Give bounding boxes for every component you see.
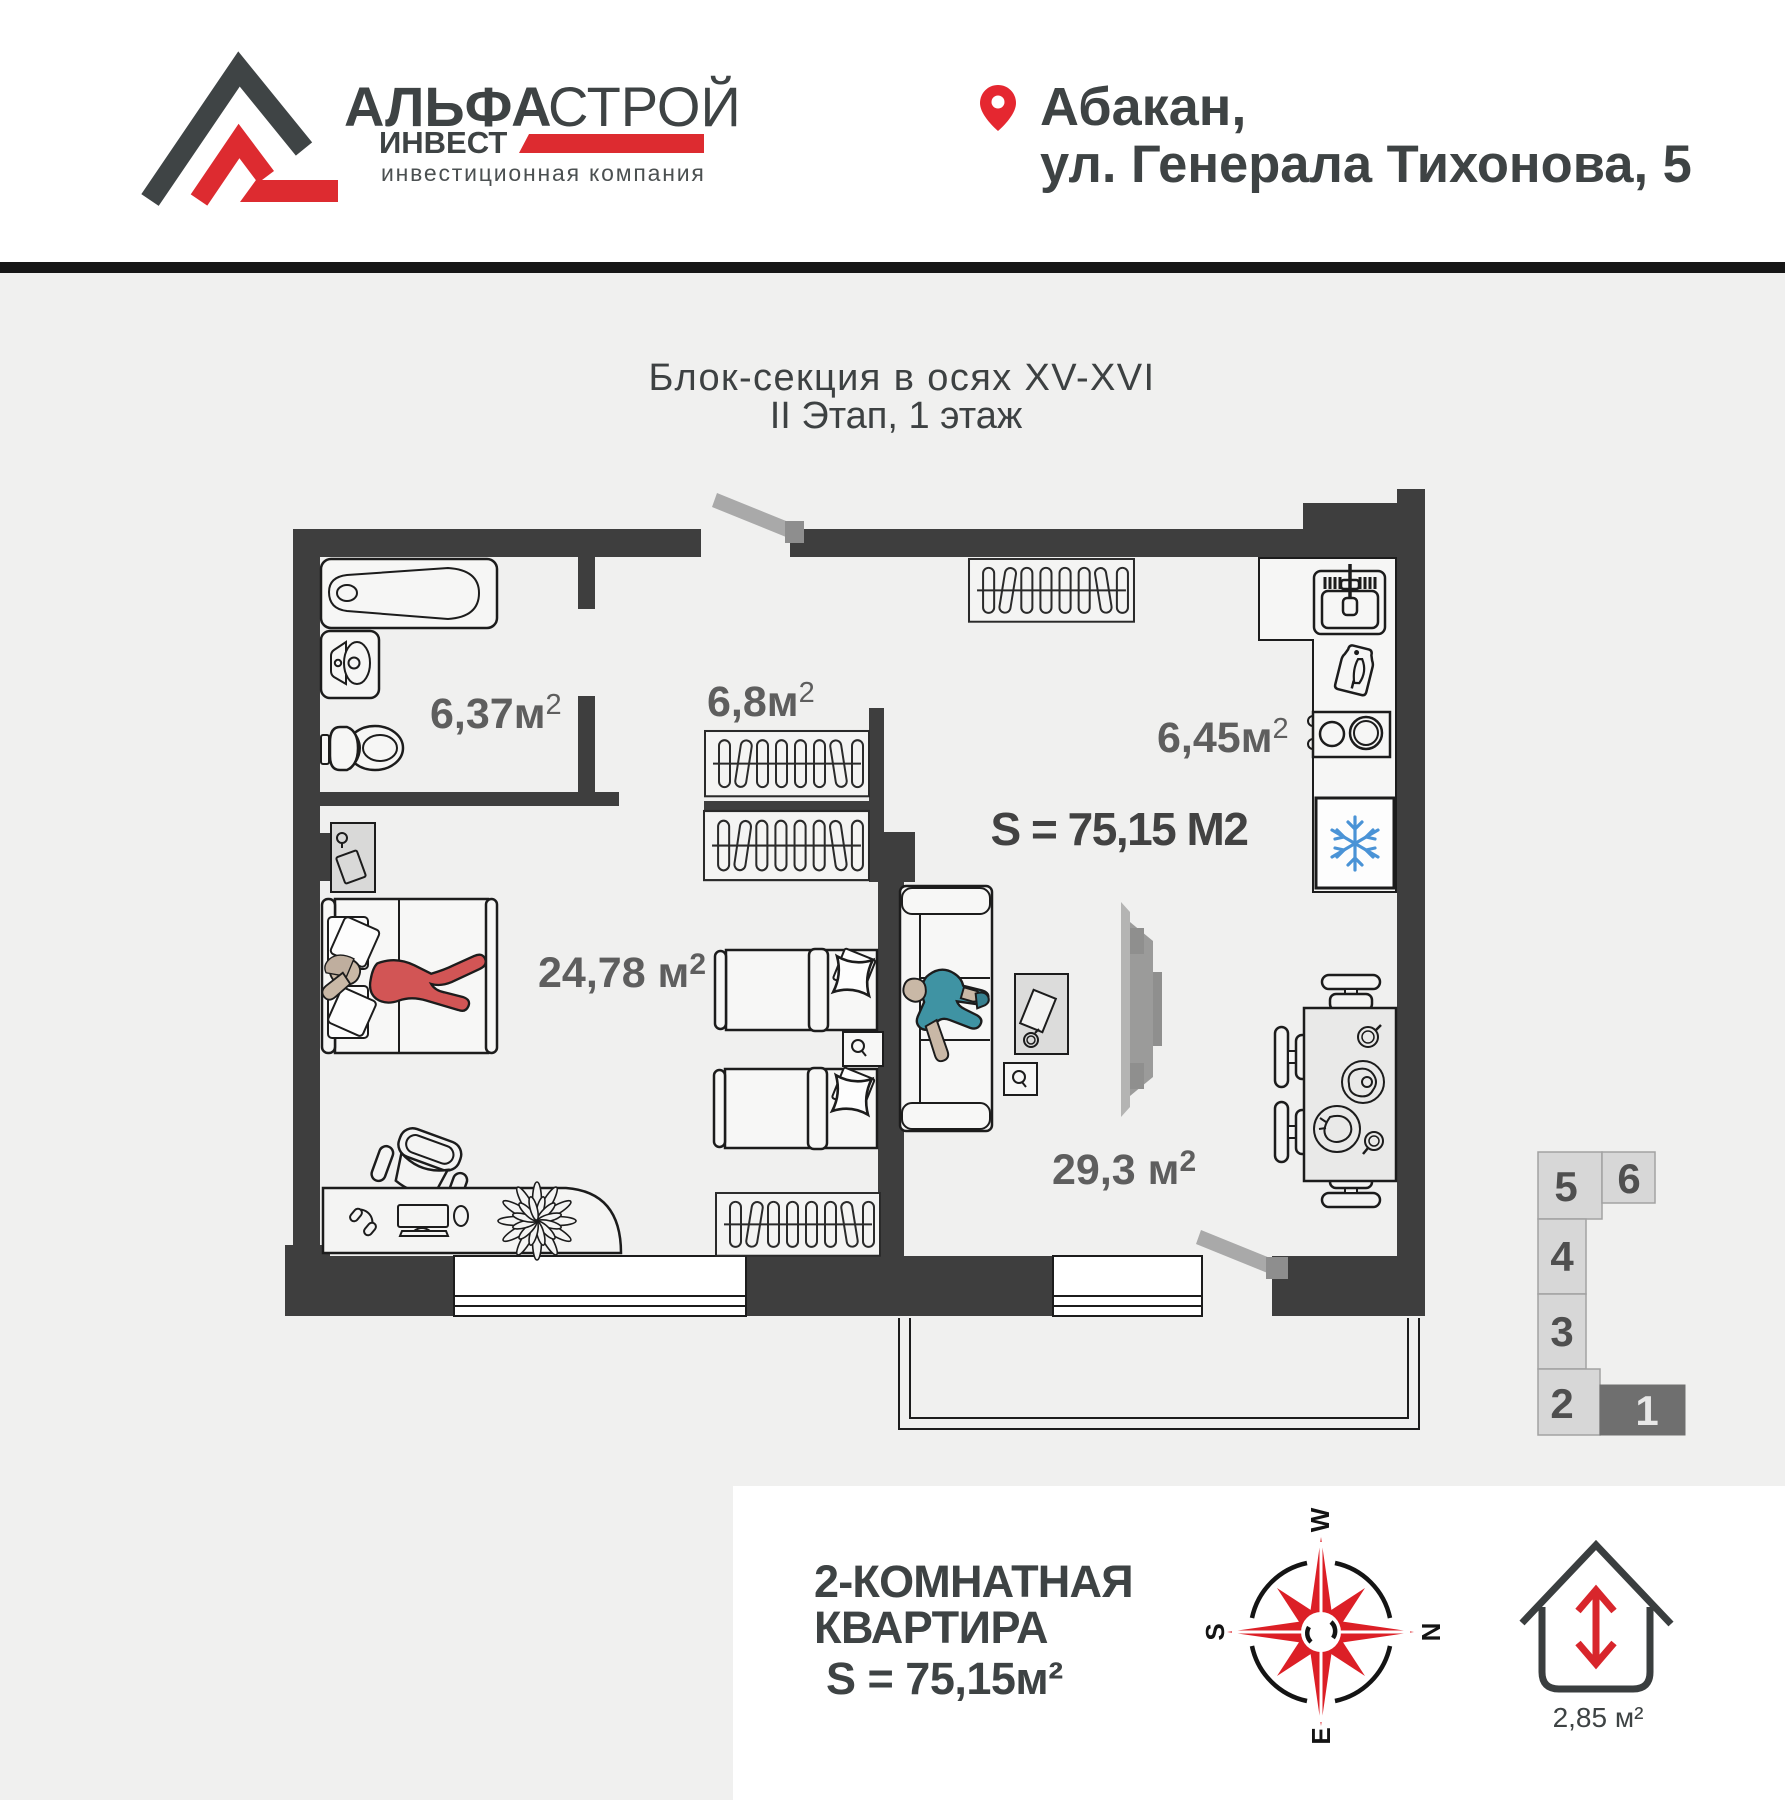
svg-text:6: 6 [1617,1155,1640,1202]
svg-text:W: W [1305,1507,1335,1532]
svg-text:6,37м2: 6,37м2 [430,689,562,738]
svg-text:ул. Генерала Тихонова, 5: ул. Генерала Тихонова, 5 [1040,135,1692,194]
svg-text:инвестиционная компания: инвестиционная компания [381,160,706,186]
svg-text:2,85 м²: 2,85 м² [1553,1702,1644,1733]
svg-text:S = 75,15 М2: S = 75,15 М2 [991,803,1248,855]
svg-text:Блок-секция в осях XV-XVI: Блок-секция в осях XV-XVI [649,357,1156,399]
svg-text:N: N [1416,1623,1446,1642]
svg-text:24,78 м2: 24,78 м2 [538,948,706,997]
svg-text:II Этап, 1 этаж: II Этап, 1 этаж [770,395,1023,437]
svg-text:Абакан,: Абакан, [1040,77,1246,137]
svg-text:5: 5 [1554,1163,1577,1210]
svg-text:S = 75,15м²: S = 75,15м² [826,1653,1063,1704]
svg-text:2-КОМНАТНАЯ: 2-КОМНАТНАЯ [814,1556,1133,1607]
svg-text:4: 4 [1550,1233,1574,1280]
svg-text:1: 1 [1635,1387,1658,1434]
svg-text:6,45м2: 6,45м2 [1157,713,1289,762]
svg-text:КВАРТИРА: КВАРТИРА [814,1602,1048,1653]
svg-text:E: E [1306,1727,1336,1744]
svg-text:6,8м2: 6,8м2 [707,677,815,726]
svg-text:3: 3 [1550,1308,1573,1355]
svg-text:ИНВЕСТ: ИНВЕСТ [379,125,507,160]
svg-text:СТРОЙ: СТРОЙ [548,75,741,138]
svg-text:29,3 м2: 29,3 м2 [1052,1145,1196,1194]
svg-text:2: 2 [1550,1380,1573,1427]
svg-text:S: S [1200,1623,1230,1640]
